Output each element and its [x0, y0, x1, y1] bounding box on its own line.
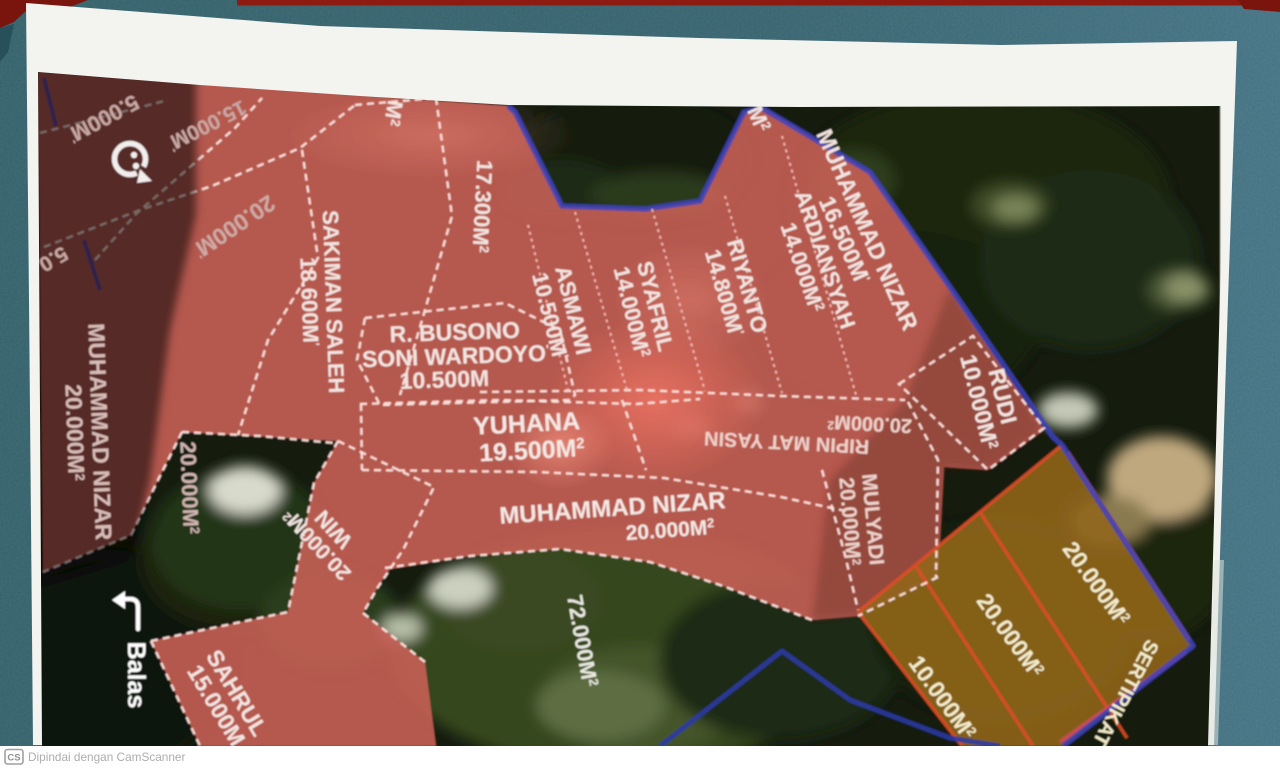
- svg-text:17.300M2: 17.300M2: [468, 159, 498, 253]
- svg-text:Dipindai dengan CamScanner: Dipindai dengan CamScanner: [28, 750, 185, 764]
- svg-text:YUHANA19.500M2: YUHANA19.500M2: [472, 407, 585, 468]
- svg-text:MULYADI20.000M2: MULYADI20.000M2: [834, 473, 888, 568]
- svg-text:Balas: Balas: [122, 642, 150, 709]
- svg-text:CS: CS: [7, 753, 20, 764]
- svg-text:20.000M2: 20.000M2: [175, 441, 203, 535]
